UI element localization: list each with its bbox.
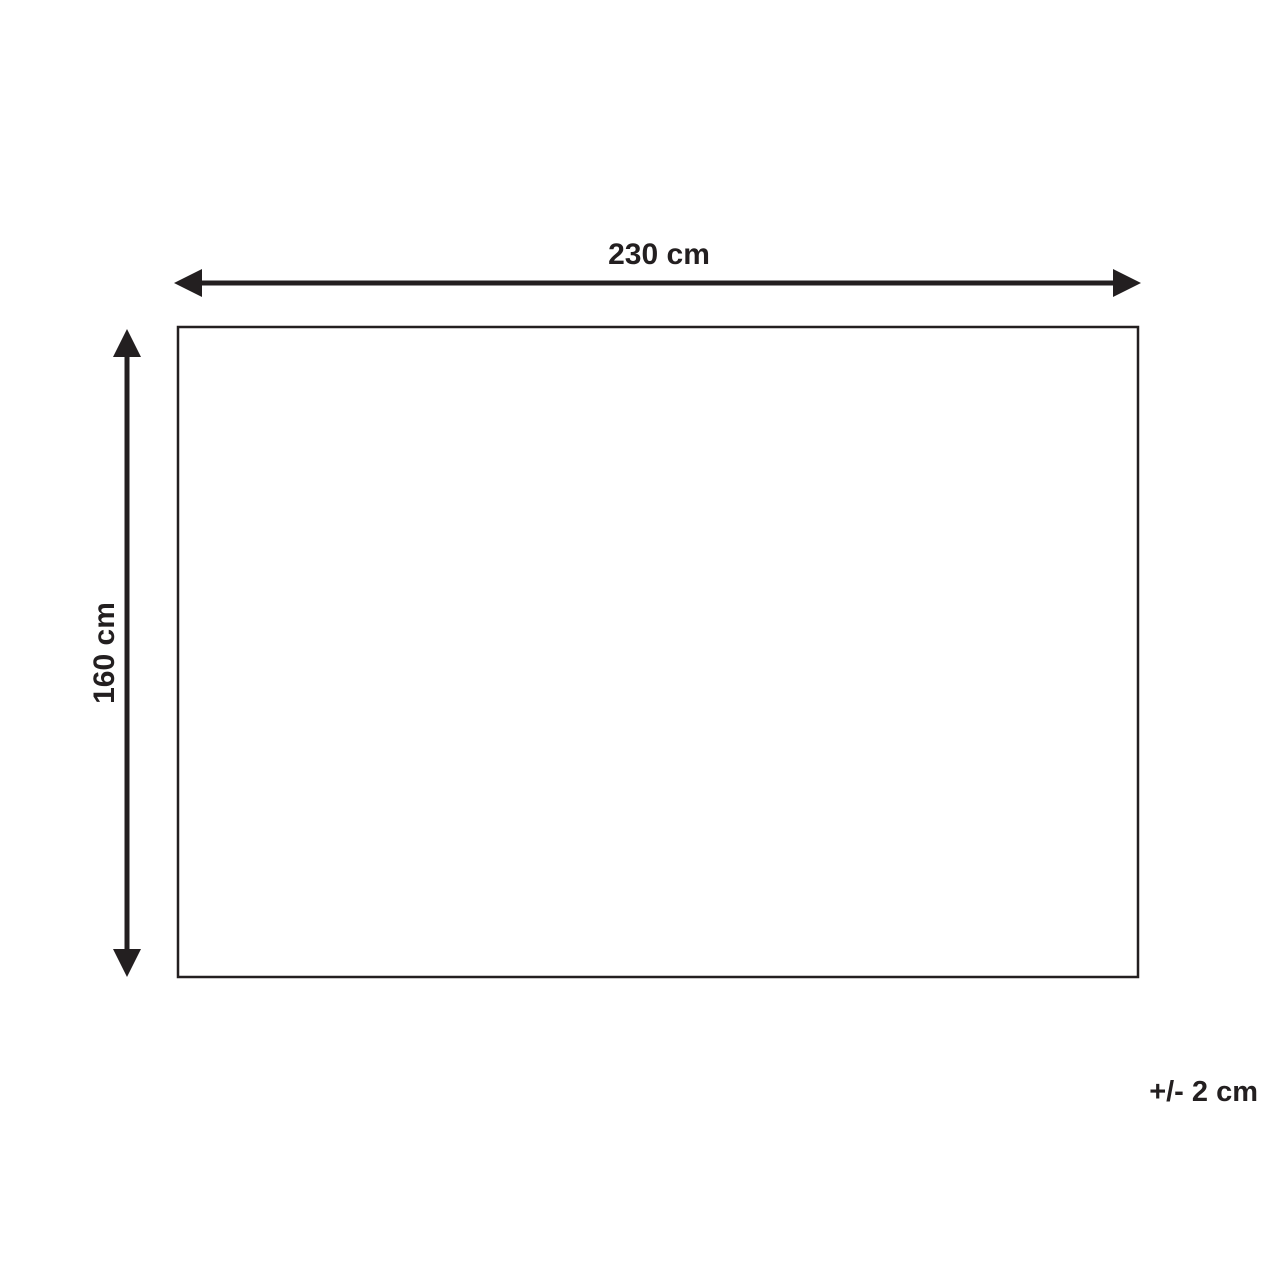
height-dimension-label: 160 cm — [90, 602, 120, 704]
width-arrow — [174, 269, 1141, 297]
arrowhead-left-icon — [174, 269, 202, 297]
width-dimension-label: 230 cm — [178, 240, 1140, 270]
arrowhead-down-icon — [113, 949, 141, 977]
product-outline-rectangle — [178, 327, 1138, 977]
dimension-diagram-graphics — [0, 0, 1280, 1280]
arrowhead-right-icon — [1113, 269, 1141, 297]
arrowhead-up-icon — [113, 329, 141, 357]
dimension-diagram: 230 cm 160 cm +/- 2 cm — [0, 0, 1280, 1280]
tolerance-label: +/- 2 cm — [1149, 1078, 1258, 1107]
